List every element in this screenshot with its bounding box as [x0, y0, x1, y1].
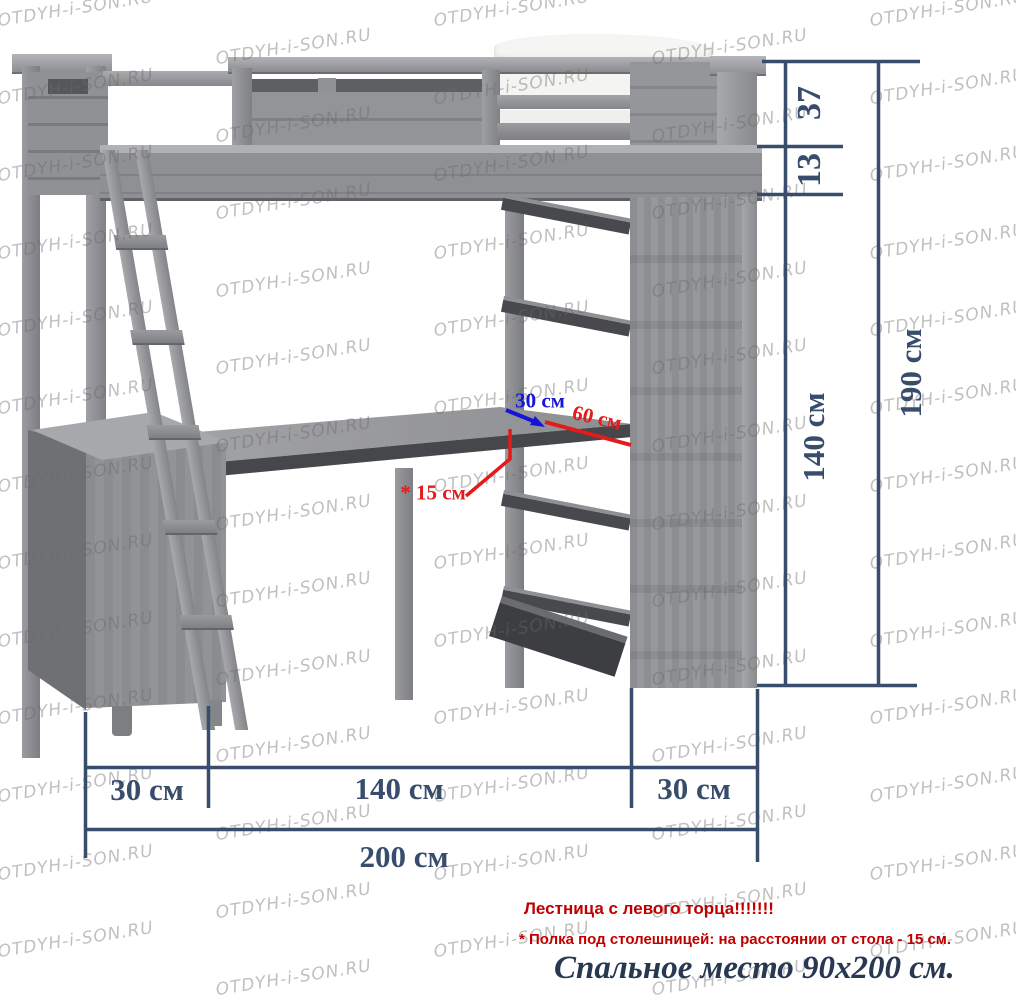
dim-label-190cm: 190 см [893, 328, 929, 417]
annotation-shelf-gap-15: * 15 см [400, 481, 466, 506]
dim-label-140cm-bottom: 140 см [354, 771, 443, 807]
dim-label-37: 37 [791, 86, 829, 120]
mattress [497, 73, 633, 95]
dresser-leg [112, 706, 132, 736]
guardrail-panel [252, 92, 482, 147]
watermark-text: OTDYH-i-SON.RU [868, 763, 1016, 807]
watermark-text: OTDYH-i-SON.RU [868, 0, 1016, 31]
watermark-text: OTDYH-i-SON.RU [432, 0, 591, 31]
watermark-text: OTDYH-i-SON.RU [214, 490, 373, 534]
guardrail-left [103, 71, 233, 86]
dim-label-13: 13 [791, 153, 829, 187]
bed-rail-lower [497, 123, 635, 140]
watermark-text: OTDYH-i-SON.RU [214, 258, 373, 302]
dim-label-30cm-right: 30 см [657, 771, 731, 807]
bed-rail-upper [497, 95, 635, 109]
ladder-rung [130, 330, 185, 345]
watermark-text: OTDYH-i-SON.RU [650, 723, 809, 767]
headboard-slot [48, 79, 88, 94]
watermark-text: OTDYH-i-SON.RU [0, 840, 155, 884]
watermark-text: OTDYH-i-SON.RU [868, 64, 1016, 108]
dim-label-30cm-left: 30 см [110, 772, 184, 808]
watermark-text: OTDYH-i-SON.RU [0, 918, 155, 962]
ladder-rung [114, 235, 169, 250]
watermark-text: OTDYH-i-SON.RU [868, 840, 1016, 884]
watermark-text: OTDYH-i-SON.RU [650, 801, 809, 845]
guardrail-notch [318, 78, 336, 93]
watermark-text: OTDYH-i-SON.RU [868, 608, 1016, 652]
watermark-text: OTDYH-i-SON.RU [868, 297, 1016, 341]
diagram-canvas: OTDYH-i-SON.RUOTDYH-i-SON.RUOTDYH-i-SON.… [0, 0, 1016, 1008]
watermark-text: OTDYH-i-SON.RU [868, 142, 1016, 186]
ladder-rung [179, 615, 234, 630]
watermark-text: OTDYH-i-SON.RU [868, 685, 1016, 729]
shelf-unit-column-edge [742, 197, 757, 688]
watermark-text: OTDYH-i-SON.RU [432, 840, 591, 884]
dresser-side [26, 424, 88, 714]
watermark-text: OTDYH-i-SON.RU [868, 530, 1016, 574]
note-under-desk-shelf: * Полка под столешницей: на расстоянии о… [519, 931, 951, 948]
ladder-rung [147, 425, 202, 440]
shelf-unit-column-grain [630, 197, 742, 688]
watermark-text: OTDYH-i-SON.RU [214, 801, 373, 845]
watermark-text: OTDYH-i-SON.RU [868, 375, 1016, 419]
watermark-text: OTDYH-i-SON.RU [214, 956, 373, 1000]
watermark-text: OTDYH-i-SON.RU [214, 335, 373, 379]
watermark-text: OTDYH-i-SON.RU [214, 568, 373, 612]
dim-label-140cm: 140 см [796, 392, 832, 481]
dim-label-200cm: 200 см [359, 839, 448, 875]
guardrail-stile-left [232, 68, 252, 147]
guardrail-slot [252, 79, 482, 92]
annotation-depth-30: 30 см [515, 389, 565, 414]
note-ladder-side: Лестница с левого торца!!!!!!! [524, 899, 774, 919]
mattress-base [497, 110, 633, 123]
watermark-text: OTDYH-i-SON.RU [868, 452, 1016, 496]
watermark-text: OTDYH-i-SON.RU [214, 878, 373, 922]
watermark-text: OTDYH-i-SON.RU [868, 220, 1016, 264]
watermark-text: OTDYH-i-SON.RU [0, 0, 155, 31]
watermark-text: OTDYH-i-SON.RU [432, 763, 591, 807]
watermark-text: OTDYH-i-SON.RU [432, 685, 591, 729]
ladder-rung [163, 520, 218, 535]
note-sleeping-area: Спальное место 90x200 см. [554, 950, 955, 987]
bed-frame-grain [100, 158, 762, 198]
